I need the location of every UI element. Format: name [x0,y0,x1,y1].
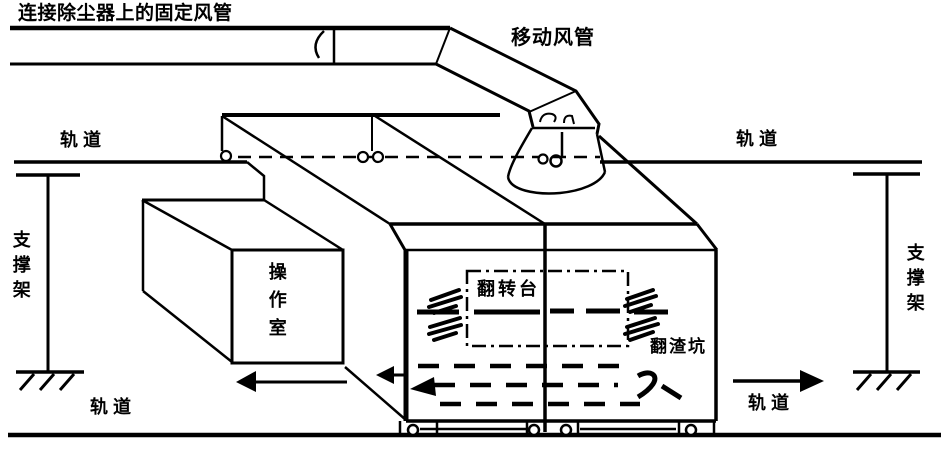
label-slag-pit: 翻渣坑 [650,338,707,357]
suction-hood [508,114,605,194]
arrow-left-under-box [236,371,256,392]
upper-rail [14,116,922,200]
label-support-left: 支撑架 [10,230,30,305]
label-operation-room: 操作室 [266,262,286,346]
label-mobile-duct: 移动风管 [511,26,595,48]
label-rail-top-left: 轨道 [60,131,106,151]
direction-arrows [236,366,824,392]
fixed-duct [10,28,450,64]
diagram-canvas: 连接除尘器上的固定风管 移动风管 轨道 轨道 支撑架 支撑架 操作室 翻转台 翻… [0,0,949,457]
arrow-left-small [376,366,394,384]
label-rail-bottom-right: 轨道 [748,394,794,414]
diagram-line-art [0,0,949,457]
label-turning-platform: 翻转台 [477,280,540,300]
arrow-right [800,370,824,392]
label-fixed-duct: 连接除尘器上的固定风管 [18,3,233,24]
label-rail-bottom-left: 轨道 [90,398,136,418]
label-rail-top-right: 轨道 [736,130,782,150]
label-support-right: 支撑架 [904,243,924,318]
pit-arrowhead [410,377,436,396]
